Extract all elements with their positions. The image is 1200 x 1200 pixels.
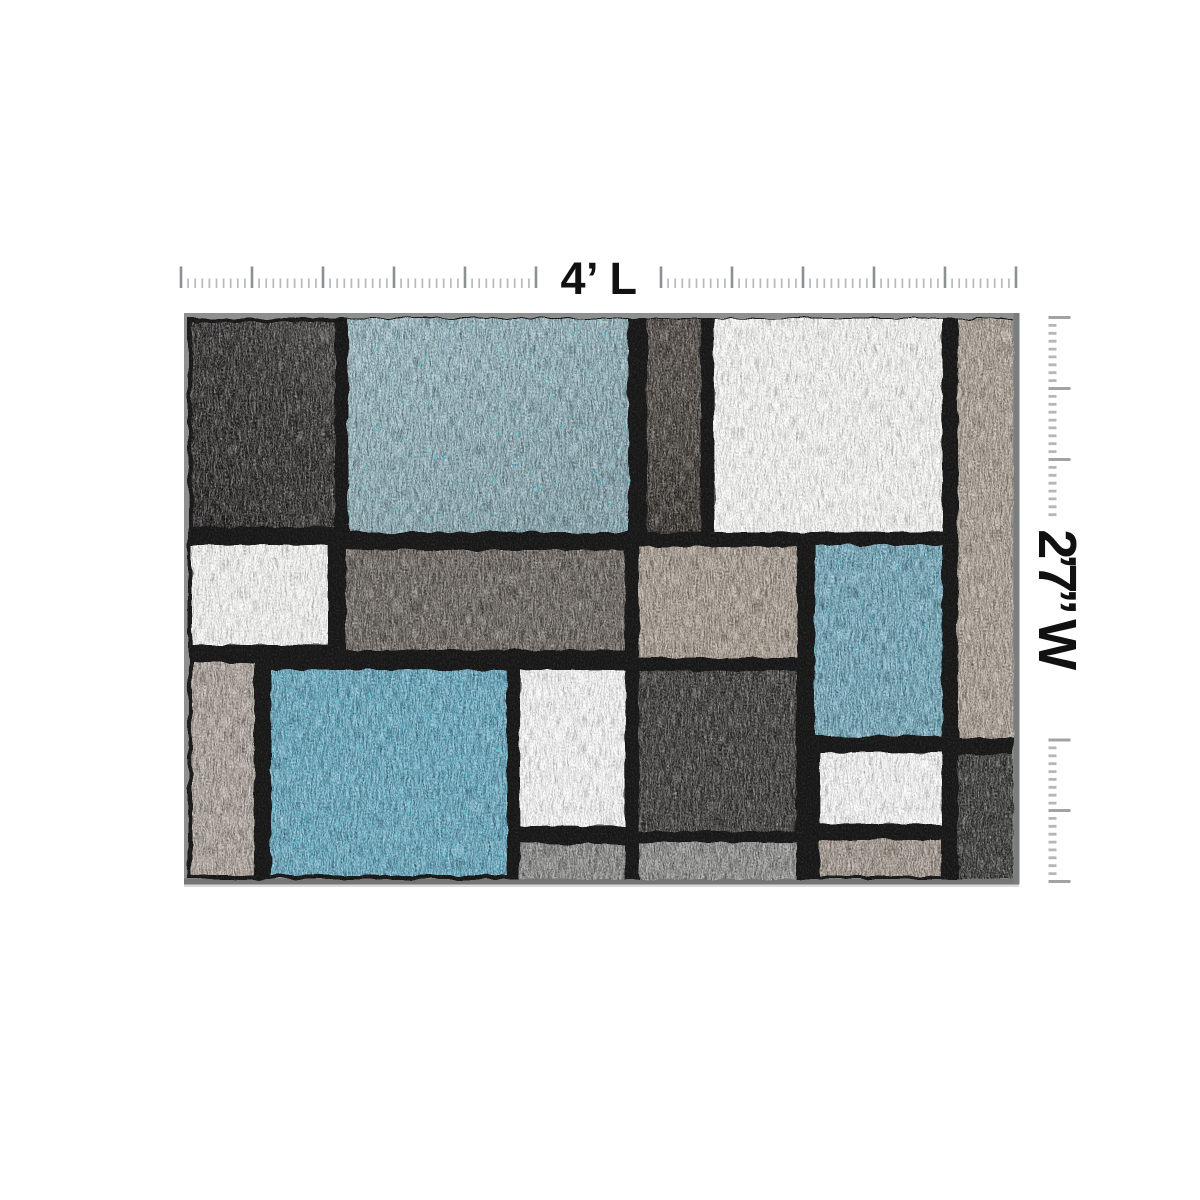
svg-text:4’ L: 4’ L xyxy=(560,253,637,304)
svg-text:2’7” W: 2’7” W xyxy=(1027,529,1087,670)
